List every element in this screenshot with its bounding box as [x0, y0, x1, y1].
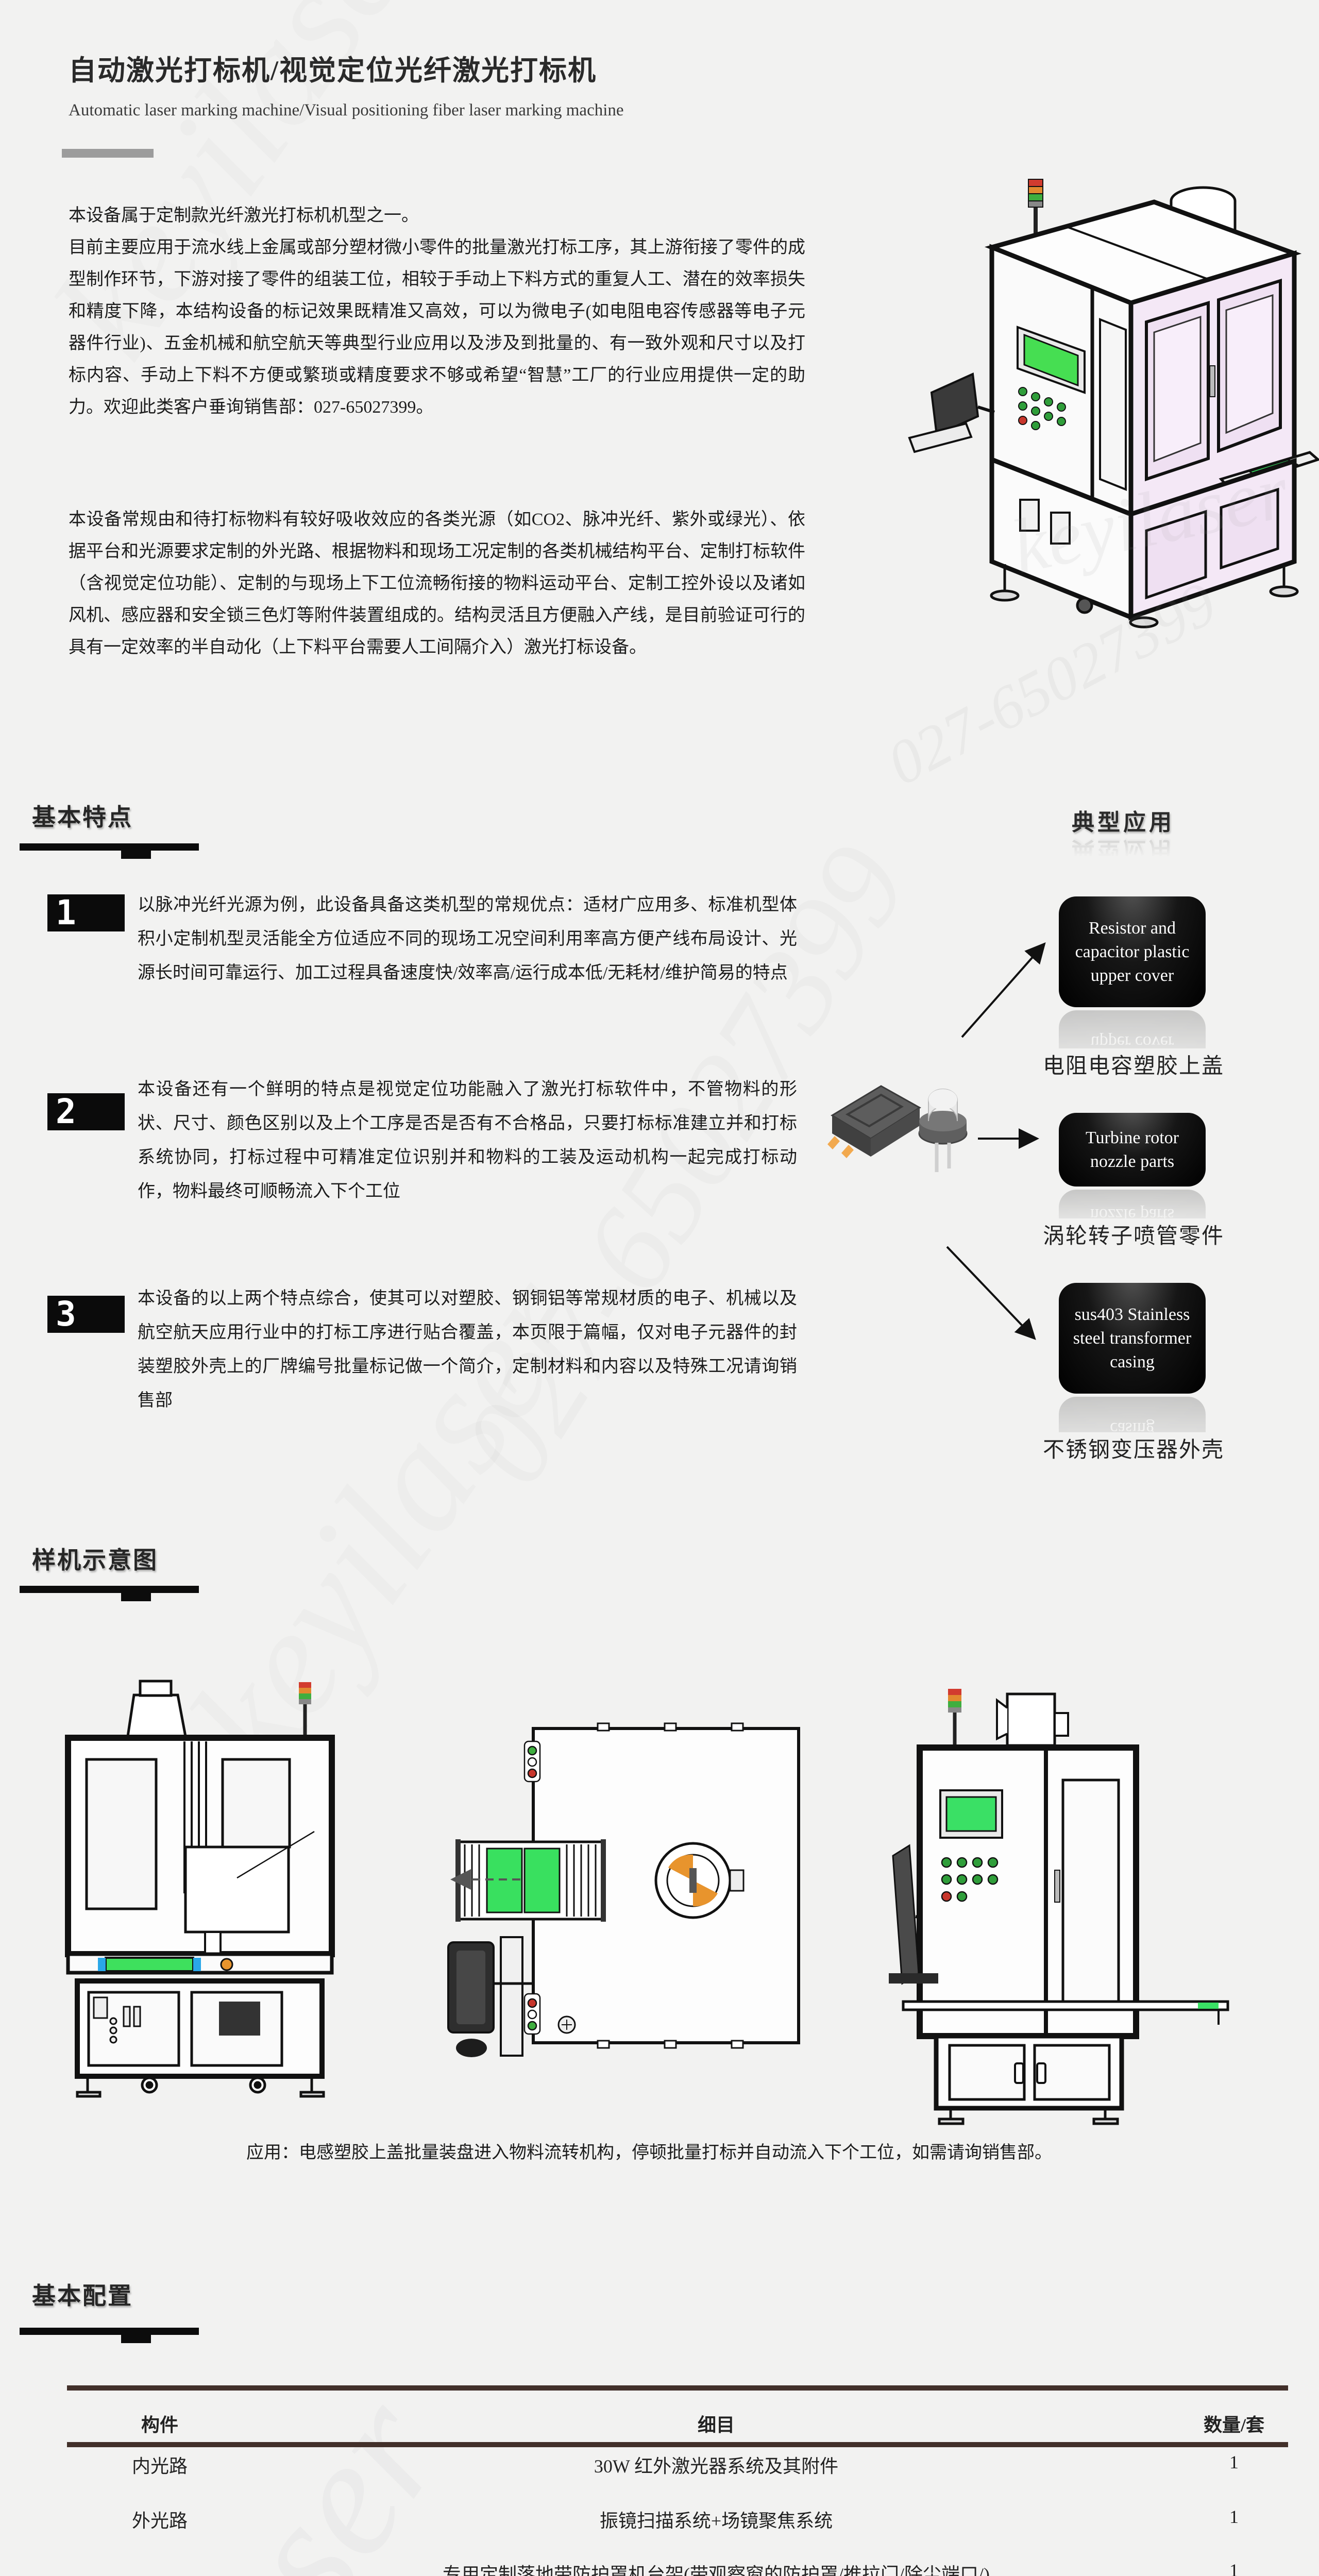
cell-qty: 1 — [1180, 2451, 1288, 2473]
monitor-icon — [448, 1937, 533, 2057]
section-underline-tab — [121, 1593, 151, 1601]
cell-component: 内光路 — [67, 2451, 252, 2478]
arrow-icon — [956, 937, 1056, 1042]
section-title-applications: 典型应用 — [1036, 804, 1211, 837]
application-label: 不锈钢变压器外壳 — [969, 1432, 1298, 1464]
section-underline — [20, 1586, 199, 1593]
title-divider — [62, 149, 154, 158]
conveyor-icon — [98, 1958, 201, 1971]
machine-feet-icon — [77, 2076, 324, 2096]
machine-front-view-drawing — [57, 1677, 345, 2099]
table-header-detail: 细目 — [252, 2410, 1180, 2437]
arrow-icon — [975, 1128, 1047, 1149]
feature-number-badge: 3 — [47, 1296, 125, 1333]
feature-number-badge: 1 — [47, 894, 125, 931]
cell-qty: 1 — [1180, 2506, 1288, 2528]
section-title-features: 基本特点 — [32, 799, 133, 833]
cell-detail: 振镜扫描系统+场镜聚焦系统 — [252, 2506, 1180, 2533]
application-badge: Turbine rotor nozzle parts — [1059, 1113, 1206, 1187]
section-title-config: 基本配置 — [32, 2277, 133, 2311]
stack-light-icon — [948, 1689, 961, 1749]
section-underline-tab — [121, 2335, 151, 2343]
application-badge: Resistor and capacitor plastic upper cov… — [1059, 896, 1206, 1007]
vent-grille-icon — [219, 2002, 260, 2036]
cell-component: 外光路 — [67, 2506, 252, 2533]
application-badge: sus403 Stainless steel transformer casin… — [1059, 1283, 1206, 1394]
prototype-caption: 应用：电感塑胶上盖批量装盘进入物料流转机构，停顿批量打标并自动流入下个工位，如需… — [144, 2138, 1154, 2163]
page-subtitle: Automatic laser marking machine/Visual p… — [69, 101, 624, 120]
feature-item-text: 本设备还有一个鲜明的特点是视觉定位功能融入了激光打标软件中，不管物料的形状、尺寸… — [138, 1073, 797, 1209]
machine-top-view-drawing — [443, 1716, 809, 2076]
section-title-applications-reflection: 典型应用 — [1036, 836, 1211, 869]
stack-light-icon — [299, 1682, 311, 1738]
section-underline — [20, 843, 199, 851]
table-header-component: 构件 — [67, 2410, 252, 2437]
feature-number-badge: 2 — [47, 1093, 125, 1130]
application-label: 电阻电容塑胶上盖 — [969, 1048, 1298, 1080]
intro-line: 本设备常规由和待打标物料有较好吸收效应的各类光源（如CO2、脉冲光纤、紫外或绿光… — [69, 504, 805, 664]
intro-paragraph-2: 本设备常规由和待打标物料有较好吸收效应的各类光源（如CO2、脉冲光纤、紫外或绿光… — [69, 504, 805, 664]
intro-paragraph-1: 本设备属于定制款光纤激光打标机机型之一。 目前主要应用于流水线上金属或部分塑材微… — [69, 200, 805, 423]
arrow-icon — [942, 1241, 1045, 1349]
machine-side-view-drawing — [889, 1685, 1255, 2125]
page-title: 自动激光打标机/视觉定位光纤激光打标机 — [69, 47, 597, 88]
feature-item-text: 本设备的以上两个特点综合，使其可以对塑胶、钢铜铝等常规材质的电子、机械以及航空航… — [138, 1282, 797, 1418]
control-screen-icon — [940, 1790, 1002, 1838]
feature-item-text: 以脉冲光纤光源为例，此设备具备这类机型的常规优点：适材广应用多、标准机型体积小定… — [138, 888, 797, 990]
table-rule-header — [67, 2442, 1288, 2447]
electronic-components-illustration — [811, 1072, 987, 1180]
led-component-icon — [919, 1089, 967, 1172]
cell-qty: 1 — [1180, 2560, 1288, 2576]
intro-line: 目前主要应用于流水线上金属或部分塑材微小零件的批量激光打标工序，其上游衔接了零件… — [69, 232, 805, 423]
marking-head-panel — [185, 1847, 289, 1932]
monitor-icon — [909, 374, 994, 452]
section-title-prototype: 样机示意图 — [32, 1541, 158, 1575]
product-page: keyilaser 027-65027399 keyilaser keyilas… — [0, 0, 1319, 2576]
table-header-qty: 数量/套 — [1180, 2410, 1288, 2437]
machine-isometric-illustration — [866, 170, 1319, 629]
chip-component-icon — [827, 1086, 920, 1158]
cell-detail: 专用定制落地带防护罩机台架(带观察窗的防护罩/推拉门/除尘端口/) — [252, 2560, 1180, 2576]
table-rule-top — [67, 2385, 1288, 2391]
section-underline — [20, 2328, 199, 2335]
intro-line: 本设备属于定制款光纤激光打标机机型之一。 — [69, 200, 805, 232]
machine-isometric-drawing — [866, 170, 1319, 629]
section-underline-tab — [121, 851, 151, 859]
blower-icon — [997, 1694, 1068, 1745]
blower-icon — [128, 1681, 185, 1736]
cell-detail: 30W 红外激光器系统及其附件 — [252, 2451, 1180, 2478]
